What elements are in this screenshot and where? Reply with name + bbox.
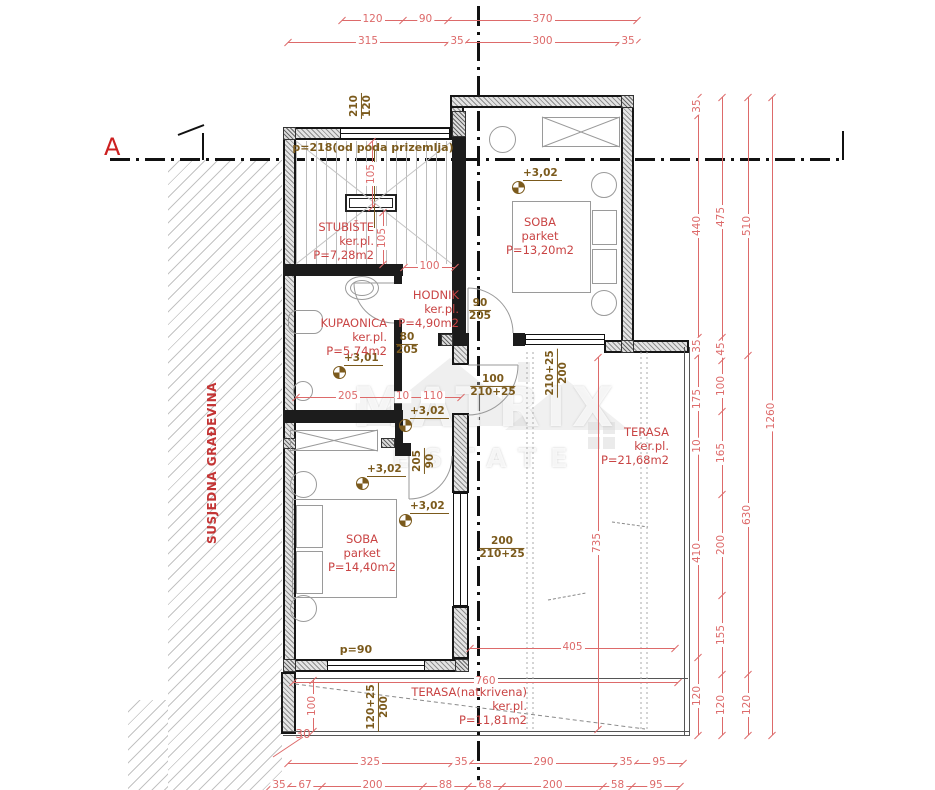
dim-label: 95 xyxy=(650,757,667,769)
room-label-terasa-natkrivena: TERASA(natkrivena)ker.pl.P=11,81m2 xyxy=(411,686,527,727)
dim-label: 300 xyxy=(530,36,554,48)
terrace-rail-right-outer xyxy=(689,347,690,735)
dim-label: 200 xyxy=(716,532,728,556)
level-marker-icon xyxy=(356,477,369,490)
dim-label: 475 xyxy=(716,205,728,229)
note-floor-height: p=218(od poda prizemlja) xyxy=(292,141,453,154)
dim-label: 120 xyxy=(716,692,728,716)
dim-label: 45 xyxy=(716,340,728,357)
door-size-mark: 120+25200 xyxy=(366,682,390,731)
dim-label: 1260 xyxy=(766,401,778,432)
door-size-mark: 80205 xyxy=(396,332,418,356)
dim-label: 315 xyxy=(356,36,380,48)
neighbor-building-hatch-lower xyxy=(128,700,168,790)
door-size-mark: 210120 xyxy=(349,93,373,119)
floor-plan-canvas: MATRIX ESTATE xyxy=(0,0,935,790)
wardrobe xyxy=(542,117,620,147)
wall-stair-south xyxy=(283,264,403,276)
wall-corner-block xyxy=(283,659,296,672)
dim-label: 510 xyxy=(742,214,754,238)
wall-corner-block xyxy=(621,340,634,353)
terrace-rail-bottom-inner xyxy=(283,731,690,732)
dim-label: 410 xyxy=(692,541,704,565)
dim-label: 10 xyxy=(692,437,704,454)
dim-label: 120 xyxy=(360,14,384,26)
bidet xyxy=(288,310,323,334)
door-size-mark: 100210+25 xyxy=(470,374,515,398)
dim-label: 105 xyxy=(366,162,378,186)
wall-corner-block xyxy=(455,659,469,672)
nightstand xyxy=(591,290,617,316)
wall-room1-south-mid xyxy=(513,333,525,346)
dim-offset-30: 30 xyxy=(295,727,310,741)
dim-line xyxy=(342,20,637,21)
wall-corner-block xyxy=(621,95,634,108)
dim-label: 175 xyxy=(692,387,704,411)
pillow xyxy=(296,505,323,548)
dim-label: 325 xyxy=(358,757,382,769)
wall-corner-block xyxy=(381,438,395,448)
pillow xyxy=(592,249,617,284)
dim-label: 165 xyxy=(716,440,728,464)
dim-label: 68 xyxy=(476,780,493,790)
dim-label: 105 xyxy=(377,226,389,250)
wall-exterior-right xyxy=(621,95,634,353)
room-label-kupaonica: KUPAONICAker.pl.P=5,74m2 xyxy=(321,317,387,358)
level-label: +3,02 xyxy=(410,500,449,514)
dim-label: 10 xyxy=(394,391,411,403)
level-marker-icon xyxy=(512,181,525,194)
room-label-soba-2: SOBAparketP=14,40m2 xyxy=(328,533,396,574)
dim-label: 110 xyxy=(421,391,445,403)
window-glass-line xyxy=(340,133,450,134)
dim-label: 95 xyxy=(647,780,664,790)
dim-label: 290 xyxy=(531,757,555,769)
dim-label: 100 xyxy=(307,693,319,717)
door-size-mark: 200210+25 xyxy=(479,536,524,560)
terrace-rail-bottom-outer xyxy=(283,735,690,736)
dim-label: 35 xyxy=(270,780,287,790)
section-line-tick xyxy=(178,125,204,135)
wall-bath-partition-stub xyxy=(394,276,402,284)
room-label-hodnik: HODNIKker.pl.P=4,90m2 xyxy=(398,289,459,330)
room-label-terasa: TERASAker.pl.P=21,68m2 xyxy=(601,426,669,467)
section-marker-a: A xyxy=(104,133,120,161)
door-size-mark: 210+25200 xyxy=(545,348,569,397)
wall-east-mid xyxy=(452,413,469,493)
wall-exterior-room-top xyxy=(450,95,634,108)
chair xyxy=(489,126,516,153)
room-label-stubiste: STUBIŠTEker.pl.P=7,28m2 xyxy=(313,221,374,262)
dim-label: 440 xyxy=(692,214,704,238)
window-glass-line xyxy=(525,339,605,340)
neighbor-label: SUSJEDNA GRAĐEVINA xyxy=(205,382,219,544)
dim-label: 100 xyxy=(417,261,441,273)
nightstand xyxy=(290,595,317,622)
dim-label: 35 xyxy=(452,757,469,769)
neighbor-building-hatch xyxy=(168,160,282,790)
dim-label: 120 xyxy=(692,684,704,708)
dim-label: 205 xyxy=(336,391,360,403)
wall-terrace-top-stub xyxy=(604,340,689,353)
dim-label: 35 xyxy=(692,97,704,114)
dim-label: 200 xyxy=(360,780,384,790)
dim-label: 200 xyxy=(540,780,564,790)
window-glass-line xyxy=(460,493,461,606)
nightstand xyxy=(591,172,617,198)
dim-label: 35 xyxy=(448,36,465,48)
dim-label: 120 xyxy=(742,692,754,716)
dim-label: 405 xyxy=(560,642,584,654)
level-label: +3,02 xyxy=(523,167,562,181)
wall-hall-south-stub xyxy=(395,443,411,456)
pillow xyxy=(296,551,323,594)
level-marker-icon xyxy=(399,419,412,432)
level-marker-icon xyxy=(399,514,412,527)
nightstand xyxy=(290,471,317,498)
section-line-end-left xyxy=(202,133,204,160)
terrace-rail-right-inner xyxy=(684,347,685,735)
dim-label: 35 xyxy=(692,337,704,354)
level-label: +3,02 xyxy=(367,463,406,477)
wall-corner-block xyxy=(283,127,296,140)
room-label-soba-1: SOBAparketP=13,20m2 xyxy=(506,216,574,257)
dim-label: 58 xyxy=(609,780,626,790)
dim-label: 735 xyxy=(592,531,604,555)
dim-line xyxy=(748,97,749,735)
dim-label: 90 xyxy=(417,14,434,26)
section-line-end-right xyxy=(842,131,844,160)
dim-label: 155 xyxy=(716,622,728,646)
wall-corner-block xyxy=(441,334,453,346)
pillow xyxy=(592,210,617,245)
level-marker-icon xyxy=(333,366,346,379)
note-parapet: p=90 xyxy=(340,643,372,656)
dim-label: 35 xyxy=(619,36,636,48)
dim-label: 67 xyxy=(296,780,313,790)
dim-label: 100 xyxy=(716,373,728,397)
dim-label: 370 xyxy=(530,14,554,26)
wall-bath-south xyxy=(283,410,401,423)
wall-corner-block xyxy=(452,111,466,137)
door-size-mark: 20590 xyxy=(412,448,436,474)
dim-label: 88 xyxy=(437,780,454,790)
dim-label: 35 xyxy=(617,757,634,769)
door-size-mark: 90205 xyxy=(469,298,491,322)
washbasin-inner xyxy=(350,280,374,296)
dim-line xyxy=(698,97,699,735)
window-glass-line xyxy=(327,665,425,666)
dim-label: 630 xyxy=(742,502,754,526)
wardrobe xyxy=(290,430,378,451)
level-label: +3,02 xyxy=(410,405,449,419)
